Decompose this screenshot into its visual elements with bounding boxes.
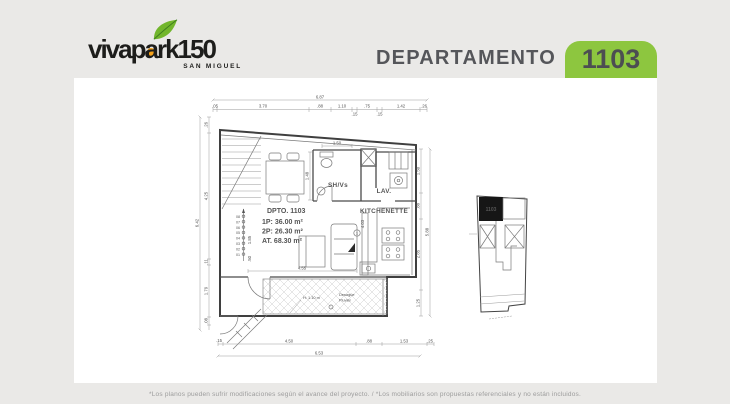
dim-label: 4.50 [285,339,294,344]
dim-label: .88 [317,104,324,109]
unit-area-1p: 1P: 36.00 m² [262,219,304,226]
dim-label: 1.50 [416,166,421,175]
dim-label: .05 [212,104,219,109]
drain-note-1: Desagüe [339,292,355,297]
dim-label: 6.42 [195,218,200,227]
step-number: 07 [236,220,240,224]
keyplan-unit-number: 1103 [486,207,497,213]
staircase: 08 07 06 05 04 03 02 01 [222,136,261,261]
parapet-note: H: 1.10 m [303,295,320,300]
dim-label: 6.87 [316,95,325,100]
unit-area-total: AT. 68.30 m² [262,238,303,245]
dim-label: .25 [427,339,434,344]
dim-label: 4.25 [204,191,209,200]
laundry-label: LAV. [377,188,392,195]
dim-label: 1.53 [400,339,409,344]
drain-note-2: Pluvial [339,298,351,303]
dim-label: .75 [364,104,371,109]
dim-label: 1.79 [204,286,209,295]
bathroom-label: SH/Vs [328,182,348,189]
column-mark: 1 [356,232,358,236]
step-number: 03 [236,242,240,246]
dim-label: 1.42 [397,104,406,109]
dim-label: .08 [204,317,209,324]
step-number: 08 [236,215,240,219]
unit-title: DPTO. 1103 [267,208,306,215]
dim-label: 3.70 [259,104,268,109]
key-plan: 1103 [469,196,527,319]
step-number: 02 [236,247,240,251]
terrace: H: 1.10 m Desagüe Pluvial [220,277,387,349]
dim-label: 1.85 [247,235,252,244]
dim-label: 1.50 [333,141,342,146]
logo-letter-a: a [145,36,157,62]
logo-wordmark: vivapark150 [88,36,242,62]
step-number: 01 [236,253,240,257]
room-labels: SH/Vs LAV. KITCHENETTE DPTO. 1103 1P: 36… [262,182,408,245]
dim-label: .88 [366,339,373,344]
dim-label: .26 [204,121,209,128]
disclaimer-text: *Los planos pueden sufrir modificaciones… [0,391,730,398]
bottom-strip [0,404,730,411]
step-number: 04 [236,237,240,241]
kitchen-label: KITCHENETTE [360,208,408,215]
dim-label: .15 [352,112,359,117]
dim-label: 1.10 [338,104,347,109]
dim-label: 1.48 [305,171,310,180]
dim-label: .15 [216,338,223,343]
logo-text-1: vivap [88,34,145,64]
logo-text-2: rk [157,34,178,64]
dim-label: 2.85 [416,249,421,258]
dim-label: 1.25 [416,298,421,307]
step-number: 06 [236,226,240,230]
bathroom-fixtures [317,152,333,201]
dim-label: .50 [247,255,252,262]
dim-label: 4.55 [298,266,307,271]
dim-label: 5.88 [425,227,430,236]
dim-label: 4.03 [360,219,365,228]
dim-label: .88 [416,202,421,209]
step-number: 05 [236,231,240,235]
dim-label: .26 [421,104,428,109]
logo-number: 150 [178,34,215,64]
dim-label: 6.53 [315,351,324,356]
dim-label: .11 [204,259,209,265]
laundry-fixtures [389,152,408,188]
dim-label: .15 [377,112,384,117]
unit-area-2p: 2P: 26.30 m² [262,229,304,236]
dimensions: 6.87 .05 3.70 .88 1.10 .15 .75 .15 1.42 … [195,95,435,358]
